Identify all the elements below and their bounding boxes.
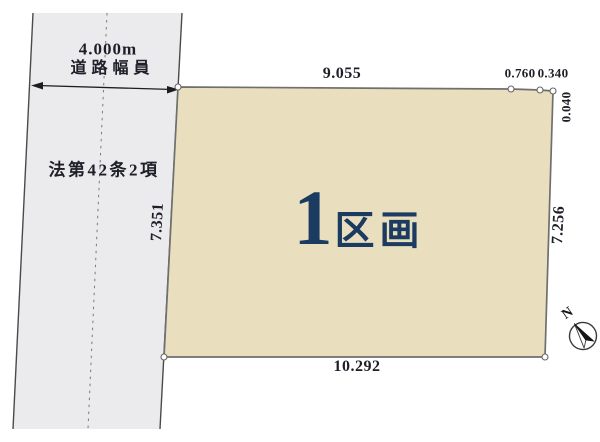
vertex-marker-bottom-left	[161, 354, 167, 360]
dim-top-right-b: 0.340	[538, 67, 569, 80]
law-article-label: 法第42条2項	[47, 162, 160, 179]
vertex-marker-top-b	[537, 87, 543, 93]
road-width-value: 4.000m	[79, 41, 137, 58]
plot-suffix: 区画	[335, 211, 425, 251]
dim-top: 9.055	[323, 66, 362, 82]
dim-right-top: 0.040	[560, 92, 573, 123]
vertex-marker-top-left	[175, 84, 181, 90]
dim-left: 7.351	[149, 202, 167, 241]
vertex-marker-bottom-right	[542, 354, 548, 360]
vertex-marker-top-a	[508, 86, 514, 92]
plot-number: 1	[294, 179, 333, 257]
road-width-caption: 道路幅員	[65, 61, 154, 77]
plot-map-diagram: 4.000m 道路幅員 法第42条2項 9.055 0.760 0.340 0.…	[0, 0, 600, 442]
dim-bottom: 10.292	[334, 359, 381, 375]
dim-top-right-a: 0.760	[505, 67, 536, 80]
plot-label: 1 区画	[294, 179, 425, 257]
dim-right: 7.256	[550, 205, 568, 244]
vertex-marker-top-right	[550, 88, 556, 94]
